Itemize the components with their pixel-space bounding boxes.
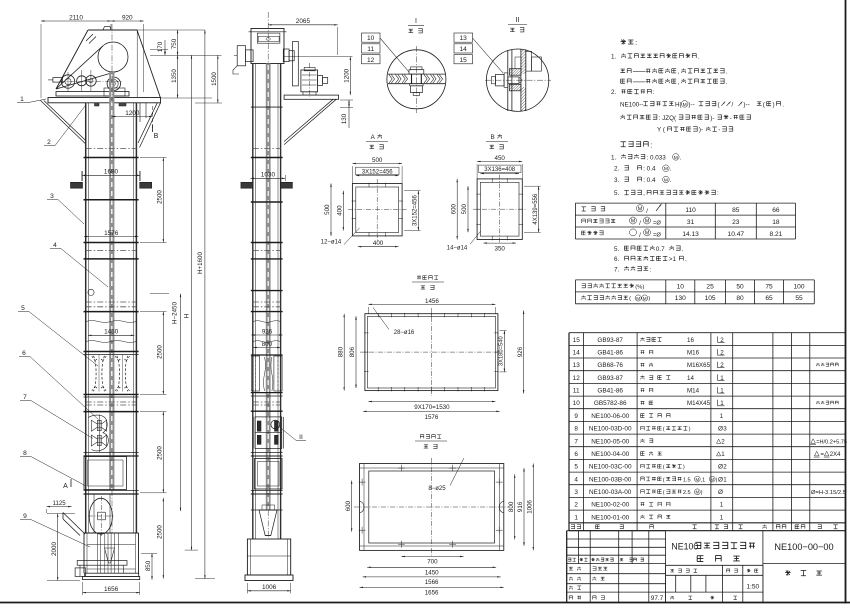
svg-text:)-: )- xyxy=(699,127,703,134)
svg-text:5: 5 xyxy=(21,305,25,312)
svg-text:3: 3 xyxy=(50,193,54,200)
svg-text:1.: 1. xyxy=(611,154,617,161)
svg-text:400: 400 xyxy=(337,205,344,216)
svg-text:NE100--: NE100-- xyxy=(620,101,643,108)
svg-text:806: 806 xyxy=(349,346,356,357)
svg-text:/: / xyxy=(646,208,648,215)
svg-text:Ø: Ø xyxy=(718,476,723,483)
svg-text:M16X65: M16X65 xyxy=(687,362,711,369)
svg-text:4X139=556: 4X139=556 xyxy=(533,193,539,225)
svg-text:Ø: Ø xyxy=(718,489,723,496)
svg-text:,: , xyxy=(643,190,645,197)
svg-text:1030: 1030 xyxy=(261,172,276,179)
svg-text:1: 1 xyxy=(720,413,724,420)
svg-text:6.: 6. xyxy=(614,256,620,263)
svg-text:(: ( xyxy=(663,477,665,483)
svg-text:): ) xyxy=(701,490,703,496)
svg-text:GB93-87: GB93-87 xyxy=(597,375,623,382)
svg-text:2500: 2500 xyxy=(157,525,164,539)
svg-text:.: . xyxy=(670,177,672,184)
svg-text:1200: 1200 xyxy=(344,68,351,82)
svg-text:14: 14 xyxy=(687,375,694,382)
svg-text:NE100-06-00: NE100-06-00 xyxy=(591,413,629,420)
svg-text:31: 31 xyxy=(687,219,695,226)
svg-text:2500: 2500 xyxy=(157,345,164,359)
svg-text:600: 600 xyxy=(345,500,352,511)
svg-text:9: 9 xyxy=(574,413,578,420)
svg-text:=Ø: =Ø xyxy=(653,232,661,238)
svg-text:0.7: 0.7 xyxy=(656,246,665,253)
svg-text:13: 13 xyxy=(460,35,468,42)
svg-text:700: 700 xyxy=(427,559,438,566)
svg-text:NE100-02-00: NE100-02-00 xyxy=(591,502,629,509)
svg-text:.: . xyxy=(698,54,700,61)
svg-text:I: I xyxy=(415,18,417,25)
svg-text:1: 1 xyxy=(721,451,725,458)
svg-text:): ) xyxy=(683,465,685,471)
svg-text:GB41-86: GB41-86 xyxy=(597,350,623,357)
svg-text:H+1600: H+1600 xyxy=(197,252,204,274)
svg-text:(: ( xyxy=(663,427,665,433)
svg-text:11: 11 xyxy=(573,388,580,395)
svg-text:M: M xyxy=(664,178,668,184)
svg-text:H: H xyxy=(184,314,191,318)
svg-text:14: 14 xyxy=(573,350,581,357)
svg-text:NE100: NE100 xyxy=(671,541,698,551)
svg-text:)--: )-- xyxy=(688,101,694,108)
svg-text:9X170=1530: 9X170=1530 xyxy=(414,404,450,411)
svg-text:M16: M16 xyxy=(687,350,700,357)
svg-text:14.13: 14.13 xyxy=(682,231,699,238)
svg-text:.: . xyxy=(726,69,728,76)
svg-text:500: 500 xyxy=(372,157,383,164)
svg-text::: : xyxy=(717,190,719,197)
svg-text:5.: 5. xyxy=(614,190,620,197)
svg-text:: 0.4: : 0.4 xyxy=(643,177,656,184)
svg-text:1656: 1656 xyxy=(425,590,439,597)
svg-text:M: M xyxy=(695,490,699,495)
svg-text:): ) xyxy=(648,296,650,302)
svg-text:2.5: 2.5 xyxy=(683,490,691,496)
svg-text:10: 10 xyxy=(367,35,375,42)
svg-text:12−ø14: 12−ø14 xyxy=(321,240,342,246)
svg-text:2500: 2500 xyxy=(157,446,164,460)
svg-text:14−ø14: 14−ø14 xyxy=(447,245,468,251)
svg-text:Ø=H-3.15/2.5: Ø=H-3.15/2.5 xyxy=(811,490,846,496)
svg-text:12: 12 xyxy=(367,57,375,64)
svg-text::: : xyxy=(650,140,652,149)
svg-text:)-: )- xyxy=(710,115,714,122)
svg-text:5.: 5. xyxy=(614,246,620,253)
svg-text:>1: >1 xyxy=(669,256,677,263)
svg-text:800: 800 xyxy=(508,501,515,512)
svg-text:7: 7 xyxy=(574,438,578,445)
svg-text:1.5: 1.5 xyxy=(683,477,691,483)
svg-text:12: 12 xyxy=(573,375,581,382)
svg-text:M: M xyxy=(631,219,635,225)
svg-text:1: 1 xyxy=(720,502,724,509)
svg-text:65: 65 xyxy=(765,295,773,302)
svg-text:800: 800 xyxy=(262,341,273,348)
svg-text:25: 25 xyxy=(706,283,714,290)
svg-text:)--: )-- xyxy=(743,101,749,108)
svg-text:=H/0.2+5.75: =H/0.2+5.75 xyxy=(816,439,847,445)
svg-text::: : xyxy=(653,89,655,96)
svg-text:1.: 1. xyxy=(611,54,617,61)
svg-text:1576: 1576 xyxy=(104,230,119,237)
svg-text:): ) xyxy=(773,101,775,108)
svg-text:M: M xyxy=(643,296,647,301)
svg-text:): ) xyxy=(689,427,691,433)
svg-text:M14: M14 xyxy=(687,388,700,395)
svg-text:M: M xyxy=(645,219,649,225)
svg-text:M: M xyxy=(664,166,668,172)
svg-text:Ø: Ø xyxy=(718,426,723,433)
svg-text:110: 110 xyxy=(685,207,696,214)
svg-text:926: 926 xyxy=(517,346,524,357)
svg-text:.: . xyxy=(782,101,784,108)
svg-text:NE100-03D-00: NE100-03D-00 xyxy=(589,426,632,433)
svg-text:2110: 2110 xyxy=(69,14,83,21)
svg-text:14: 14 xyxy=(460,46,468,53)
svg-text:Ø: Ø xyxy=(718,464,723,471)
svg-text:B: B xyxy=(491,134,495,141)
svg-text:8.21: 8.21 xyxy=(769,231,782,238)
svg-text:NE100-05-00: NE100-05-00 xyxy=(591,438,629,445)
svg-text:H−2450: H−2450 xyxy=(172,302,179,324)
svg-text:55: 55 xyxy=(795,295,803,302)
svg-text:28−ø16: 28−ø16 xyxy=(394,330,415,336)
svg-text:(: ( xyxy=(663,465,665,471)
svg-text:2000: 2000 xyxy=(51,542,58,556)
svg-text:3X136=408: 3X136=408 xyxy=(484,167,516,173)
svg-text:1350: 1350 xyxy=(171,69,178,83)
svg-text:2.: 2. xyxy=(614,166,620,173)
svg-text:8: 8 xyxy=(23,450,27,457)
svg-text:80: 80 xyxy=(736,295,744,302)
svg-text:130: 130 xyxy=(675,295,686,302)
svg-text:500: 500 xyxy=(324,204,331,215)
svg-text:1450: 1450 xyxy=(425,570,439,577)
svg-text:M: M xyxy=(695,477,699,482)
svg-text:NE100-03B-00: NE100-03B-00 xyxy=(589,476,632,483)
svg-text:1: 1 xyxy=(723,476,727,483)
svg-text:500: 500 xyxy=(461,203,468,214)
svg-text:1: 1 xyxy=(720,514,724,521)
svg-text:6: 6 xyxy=(574,451,578,458)
svg-text:9: 9 xyxy=(23,513,27,520)
svg-text:/: / xyxy=(639,220,641,227)
svg-text:/: / xyxy=(732,101,734,108)
svg-text:1456: 1456 xyxy=(425,298,439,305)
svg-text:6: 6 xyxy=(22,350,26,357)
svg-text:3: 3 xyxy=(723,426,727,433)
svg-text:M: M xyxy=(636,296,640,301)
svg-text:,1: ,1 xyxy=(701,477,706,483)
svg-text:: 0.033: : 0.033 xyxy=(647,154,667,161)
svg-text:2: 2 xyxy=(720,350,724,357)
svg-text:105: 105 xyxy=(705,295,716,302)
svg-text:750: 750 xyxy=(171,38,178,49)
svg-text:Y (: Y ( xyxy=(657,127,666,134)
svg-text:450: 450 xyxy=(495,155,506,162)
svg-text:M: M xyxy=(638,207,643,213)
svg-text:2: 2 xyxy=(720,362,724,369)
svg-text:2: 2 xyxy=(47,139,51,146)
svg-text:4: 4 xyxy=(53,242,57,249)
svg-text:16: 16 xyxy=(687,337,694,344)
svg-text:2X4: 2X4 xyxy=(830,452,841,458)
svg-text:2500: 2500 xyxy=(157,190,164,204)
svg-text::: : xyxy=(650,266,652,273)
svg-text:1576: 1576 xyxy=(425,414,439,421)
svg-text:97.7: 97.7 xyxy=(651,595,664,602)
svg-text:1:50: 1:50 xyxy=(746,583,759,590)
svg-text:13: 13 xyxy=(573,362,581,369)
svg-text:75: 75 xyxy=(765,283,773,290)
svg-text:3X180=540: 3X180=540 xyxy=(499,336,505,366)
svg-text:100: 100 xyxy=(793,283,804,290)
svg-text:M14X45: M14X45 xyxy=(687,400,711,407)
svg-text:1: 1 xyxy=(20,96,24,103)
svg-text:1: 1 xyxy=(720,388,724,395)
svg-text:1450: 1450 xyxy=(104,329,119,336)
svg-text:170: 170 xyxy=(157,41,164,52)
svg-text:.: . xyxy=(670,166,672,173)
svg-text:: JZQ(: : JZQ( xyxy=(659,115,677,122)
svg-text:II: II xyxy=(516,17,520,24)
svg-text:II: II xyxy=(299,434,303,441)
svg-text:400: 400 xyxy=(373,240,384,247)
svg-text:1680: 1680 xyxy=(104,169,119,176)
svg-text:B: B xyxy=(154,133,159,140)
svg-text:1566: 1566 xyxy=(425,579,439,586)
svg-text:1: 1 xyxy=(720,400,724,407)
svg-text:926: 926 xyxy=(262,328,273,335)
svg-text:1: 1 xyxy=(720,375,724,382)
svg-text:2065: 2065 xyxy=(296,18,311,25)
svg-text:850: 850 xyxy=(145,560,152,571)
svg-text:10: 10 xyxy=(677,283,685,290)
svg-text:1200: 1200 xyxy=(125,110,140,117)
svg-text:NE100−00−00: NE100−00−00 xyxy=(774,542,833,552)
svg-text:.: . xyxy=(685,256,687,263)
svg-text:2.: 2. xyxy=(611,89,617,96)
svg-text:15: 15 xyxy=(573,337,581,344)
svg-text:50: 50 xyxy=(736,283,744,290)
svg-text:10: 10 xyxy=(573,400,581,407)
svg-text:11: 11 xyxy=(367,46,374,53)
svg-text:916: 916 xyxy=(517,501,524,512)
svg-text:2: 2 xyxy=(723,464,727,471)
svg-text:(%): (%) xyxy=(635,284,644,290)
svg-text:: 0.4: : 0.4 xyxy=(643,166,656,173)
svg-text:NE100-03A-00: NE100-03A-00 xyxy=(589,489,632,496)
svg-text:/: / xyxy=(639,232,641,239)
svg-text:A: A xyxy=(63,483,68,490)
svg-text:66: 66 xyxy=(772,207,780,214)
svg-text:-: - xyxy=(730,115,732,122)
svg-text:,: , xyxy=(678,79,680,86)
svg-text:3.: 3. xyxy=(614,177,620,184)
svg-text:880: 880 xyxy=(337,346,344,357)
svg-text:(: ( xyxy=(663,490,665,496)
svg-text::: : xyxy=(635,38,637,47)
svg-text:3X152=456: 3X152=456 xyxy=(362,169,394,175)
svg-text:18: 18 xyxy=(772,219,780,226)
svg-text:-: - xyxy=(718,127,720,134)
svg-text:4: 4 xyxy=(574,476,578,483)
svg-text:NE100-03C-00: NE100-03C-00 xyxy=(589,464,632,471)
svg-text:5: 5 xyxy=(574,464,578,471)
svg-text:8−ø25: 8−ø25 xyxy=(428,486,446,492)
svg-text:GB93-87: GB93-87 xyxy=(597,337,623,344)
svg-text:1656: 1656 xyxy=(104,586,119,593)
svg-text:GB41-86: GB41-86 xyxy=(597,388,623,395)
svg-text:GB5782-86: GB5782-86 xyxy=(594,400,627,407)
svg-text:.: . xyxy=(682,246,684,253)
svg-text:3X152=456: 3X152=456 xyxy=(413,195,419,227)
svg-text:130: 130 xyxy=(341,113,348,124)
svg-text:600: 600 xyxy=(450,203,457,214)
svg-text:M: M xyxy=(645,231,649,237)
svg-text:8: 8 xyxy=(574,426,578,433)
svg-text:15: 15 xyxy=(460,57,468,64)
svg-text:M: M xyxy=(683,102,687,108)
svg-text:2: 2 xyxy=(720,337,724,344)
svg-text:=Ø: =Ø xyxy=(653,221,661,227)
svg-text:1006: 1006 xyxy=(527,499,534,513)
svg-text:7: 7 xyxy=(23,394,27,401)
svg-text:.: . xyxy=(680,154,682,161)
svg-text:.: . xyxy=(726,79,728,86)
svg-text:7.: 7. xyxy=(614,266,620,273)
svg-text:10.47: 10.47 xyxy=(728,231,745,238)
svg-text:NE100-04-00: NE100-04-00 xyxy=(591,451,629,458)
svg-text:2: 2 xyxy=(574,502,578,509)
svg-text:1: 1 xyxy=(574,514,578,521)
svg-text:350: 350 xyxy=(495,245,506,252)
svg-text:1006: 1006 xyxy=(262,584,277,591)
svg-text:920: 920 xyxy=(122,14,133,21)
svg-text:M: M xyxy=(674,155,678,161)
svg-text:,: , xyxy=(678,69,680,76)
svg-text:23: 23 xyxy=(732,219,740,226)
svg-text:(: ( xyxy=(629,296,631,302)
svg-text:3: 3 xyxy=(574,489,578,496)
svg-text:M: M xyxy=(710,477,714,482)
svg-text:2: 2 xyxy=(721,438,725,445)
svg-text:1500: 1500 xyxy=(211,72,218,86)
svg-text:1125: 1125 xyxy=(53,501,67,507)
svg-text:GB68-76: GB68-76 xyxy=(597,362,623,369)
svg-text:NE100-01-00: NE100-01-00 xyxy=(591,514,629,521)
svg-text:85: 85 xyxy=(732,207,740,214)
